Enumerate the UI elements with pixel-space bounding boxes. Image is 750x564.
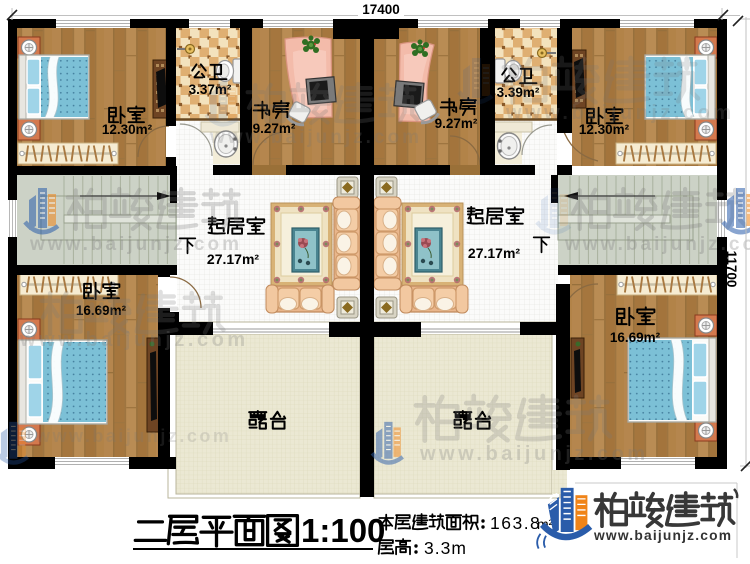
svg-text:16.69m²: 16.69m² xyxy=(610,330,661,345)
svg-text:www.baijunjz.com: www.baijunjz.com xyxy=(19,329,249,351)
svg-text:11700: 11700 xyxy=(724,251,739,288)
svg-text:12.30m²: 12.30m² xyxy=(579,122,630,137)
svg-text:www.baijunjz.com: www.baijunjz.com xyxy=(29,234,242,255)
svg-text:www.baijunjz.com: www.baijunjz.com xyxy=(505,102,735,124)
svg-text:9.27m²: 9.27m² xyxy=(435,116,478,131)
svg-text:www.baijunjz.com: www.baijunjz.com xyxy=(419,443,649,465)
svg-text:www.baijunjz.com: www.baijunjz.com xyxy=(593,528,732,543)
svg-text:3.3m: 3.3m xyxy=(424,538,467,558)
svg-text:www.baijunjz.com: www.baijunjz.com xyxy=(209,127,422,148)
svg-text:17400: 17400 xyxy=(362,2,400,17)
svg-text:3.39m²: 3.39m² xyxy=(497,85,540,100)
svg-text:www.baijunjz.com: www.baijunjz.com xyxy=(35,426,231,446)
svg-text:1:100: 1:100 xyxy=(301,512,385,549)
svg-text:163.8: 163.8 xyxy=(490,513,541,533)
svg-text:27.17m²: 27.17m² xyxy=(468,245,520,261)
svg-text:12.30m²: 12.30m² xyxy=(102,122,153,137)
svg-text:www.baijunjz.com: www.baijunjz.com xyxy=(564,234,750,255)
